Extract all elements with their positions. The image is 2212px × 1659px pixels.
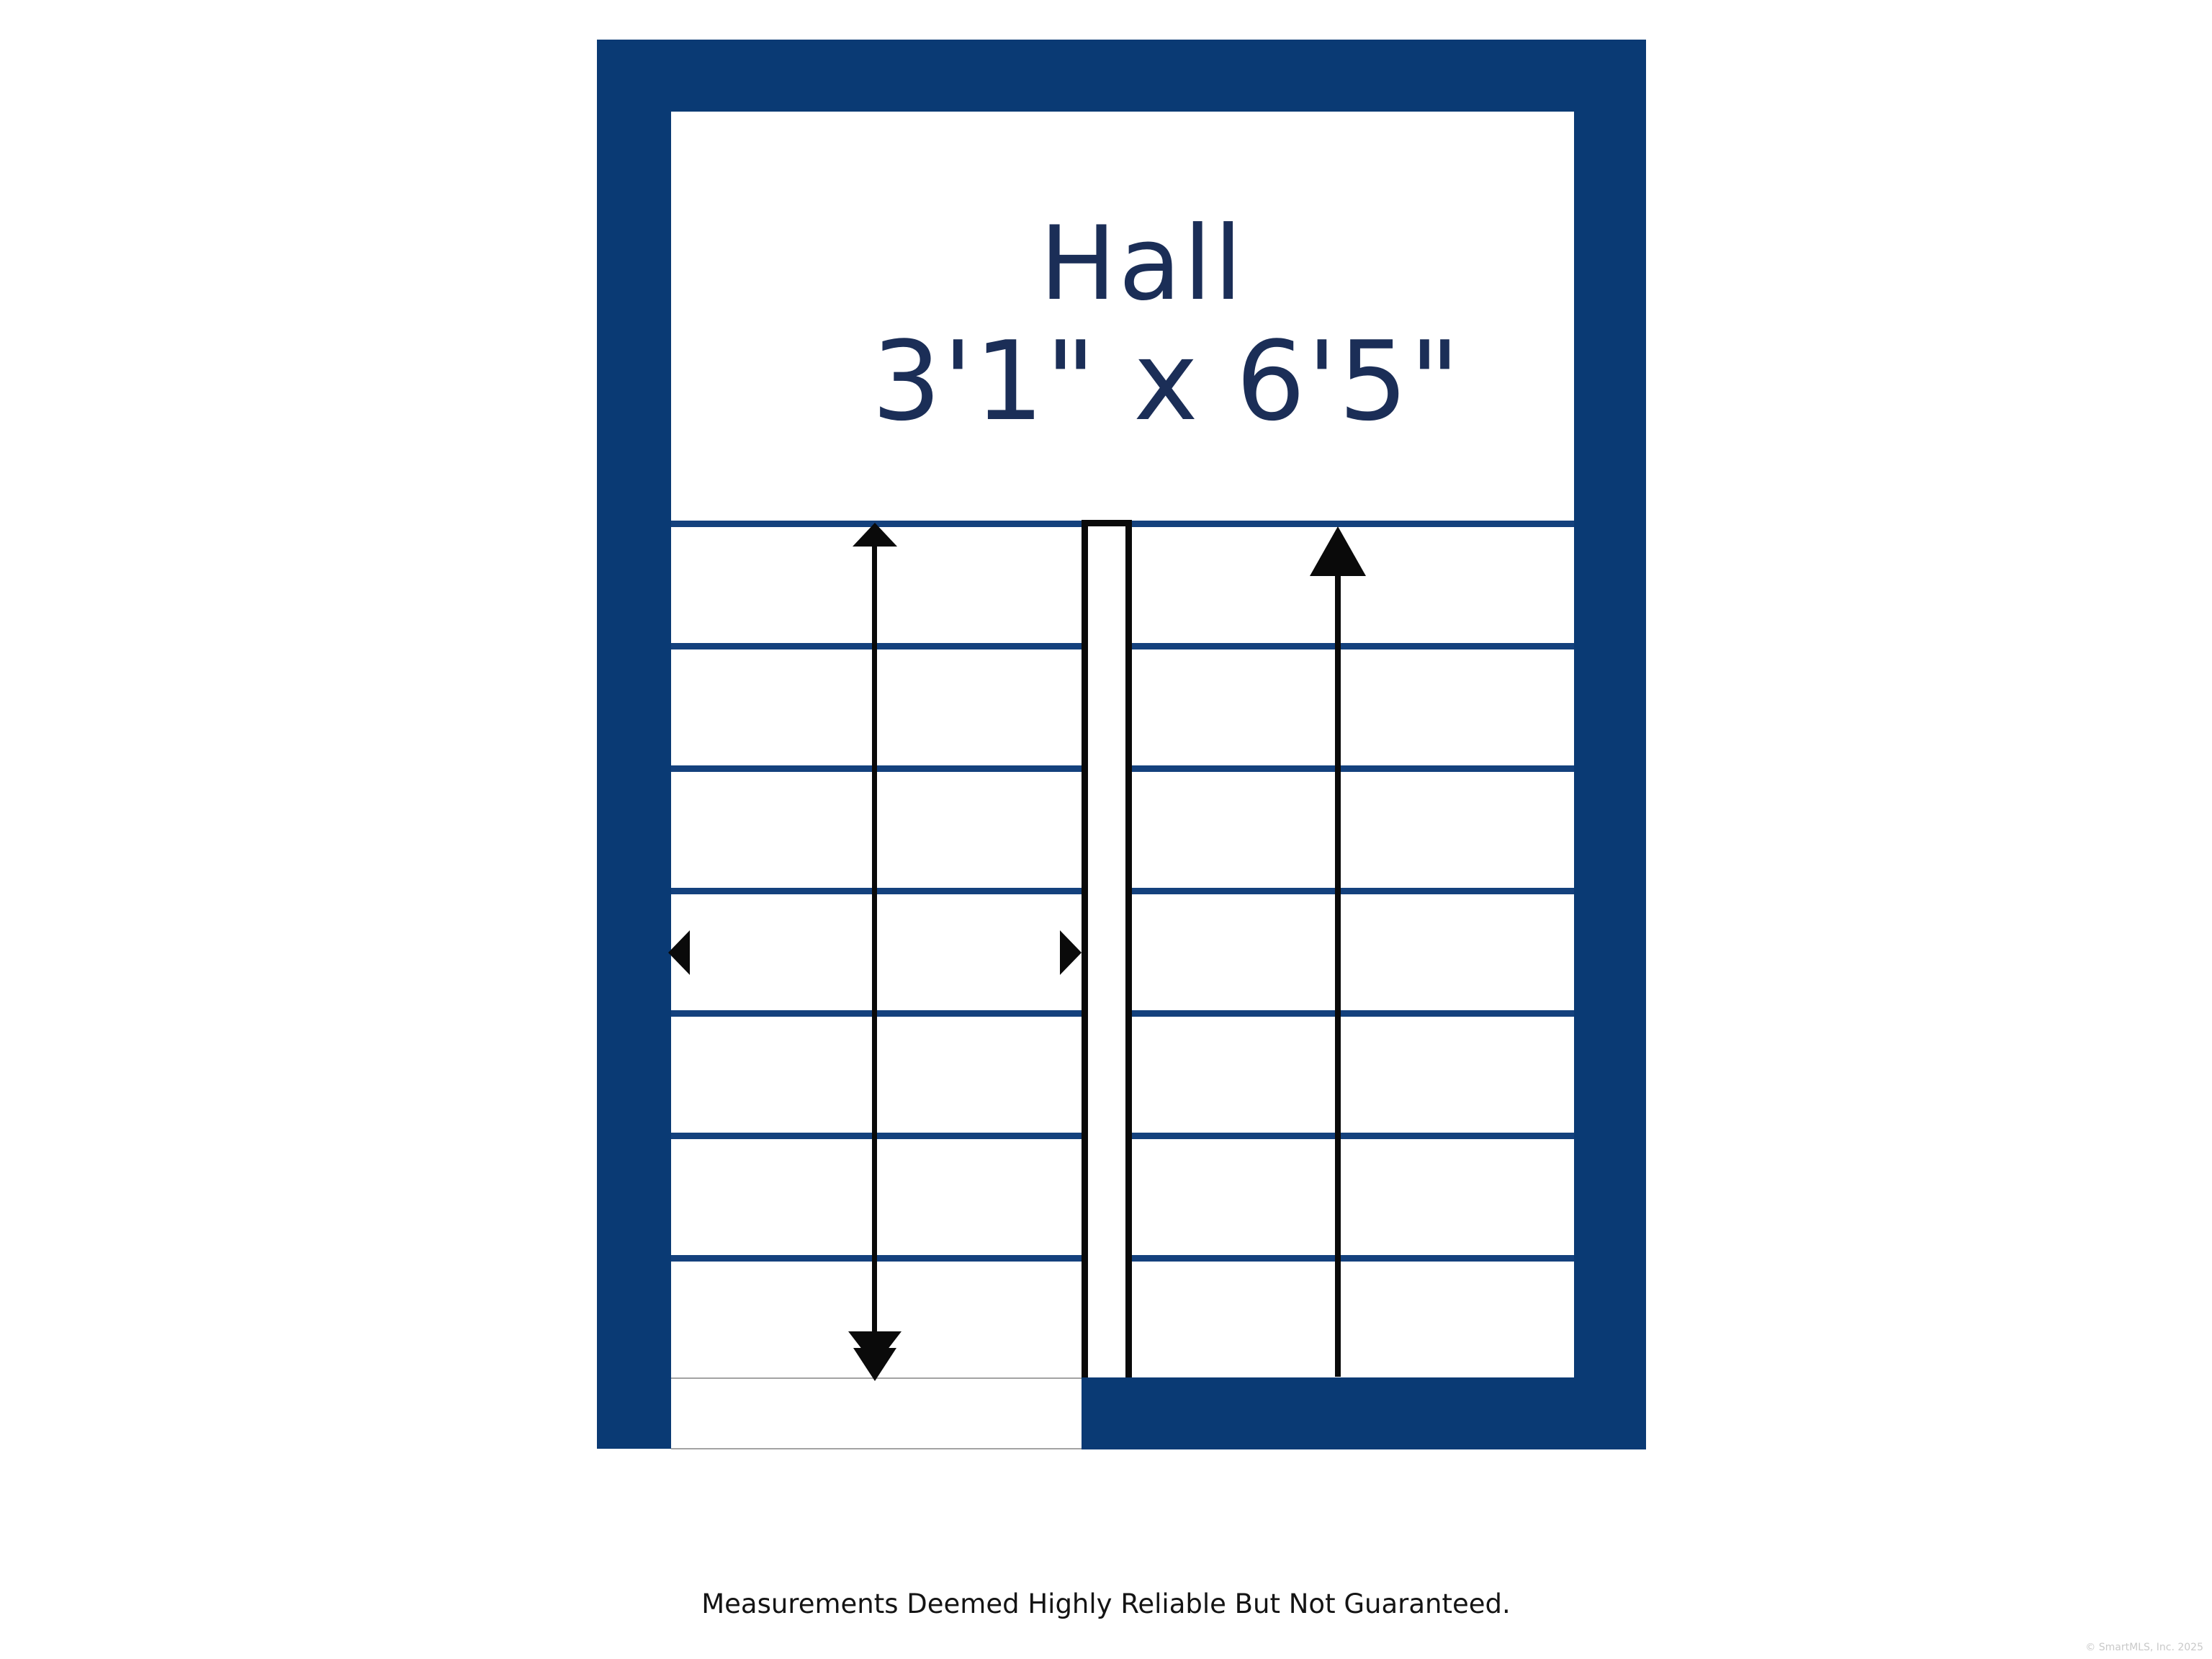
stair-divider-railing — [1082, 520, 1132, 1377]
up-arrowhead-icon — [1310, 526, 1366, 576]
floorplan-page: { "floorplan": { "room": { "name": "Hall… — [0, 0, 2212, 1659]
stair-tread-line-right — [1132, 1010, 1574, 1017]
room-dimensions-label: 3'1" x 6'5" — [715, 324, 1618, 439]
stair-tread-line-right — [1132, 643, 1574, 649]
up-arrowhead-icon — [853, 523, 897, 547]
down-arrowhead-icon — [848, 1331, 902, 1381]
wall-left — [597, 40, 671, 1449]
stair-tread-line-right — [1132, 888, 1574, 894]
stair-tread-line-right — [1132, 765, 1574, 772]
room-name-label: Hall — [691, 210, 1593, 318]
wall-top — [597, 40, 1646, 112]
copyright-text: © SmartMLS, Inc. 2025 — [2085, 1642, 2203, 1653]
disclaimer-text: Measurements Deemed Highly Reliable But … — [0, 1588, 2212, 1619]
left-flight-arrow-shaft — [872, 541, 877, 1334]
stair-landing — [671, 1377, 1082, 1449]
stair-tread-line-right — [1132, 1255, 1574, 1262]
right-arrowhead-icon — [1060, 930, 1082, 975]
right-flight-arrow-shaft — [1335, 572, 1341, 1377]
wall-bottom — [1082, 1377, 1646, 1449]
stair-tread-line-right — [1132, 1133, 1574, 1139]
left-arrowhead-icon — [668, 930, 690, 975]
